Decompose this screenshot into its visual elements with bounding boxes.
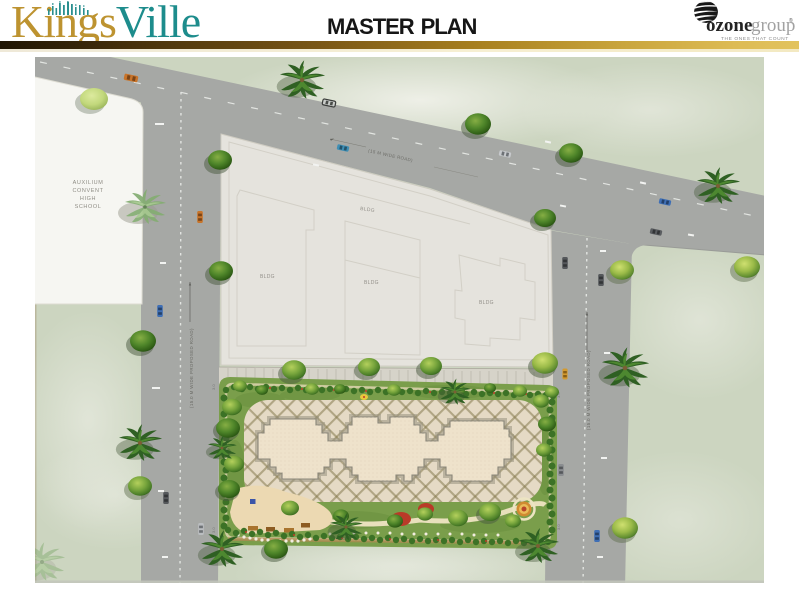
svg-text:BLDG: BLDG <box>364 280 379 286</box>
svg-text:3.0: 3.0 <box>556 524 561 530</box>
svg-text:3.0: 3.0 <box>211 384 216 390</box>
svg-text:ozone: ozone <box>706 15 752 36</box>
svg-text:®: ® <box>789 17 793 24</box>
svg-text:HIGH: HIGH <box>80 196 96 202</box>
svg-text:3.0: 3.0 <box>211 527 216 533</box>
svg-text:SCHOOL: SCHOOL <box>75 204 102 210</box>
svg-text:BLDG: BLDG <box>260 274 275 280</box>
svg-text:(15.0 M WIDE PROPOSED ROAD): (15.0 M WIDE PROPOSED ROAD) <box>189 328 194 408</box>
svg-text:(15.0 M WIDE PROPOSED ROAD): (15.0 M WIDE PROPOSED ROAD) <box>586 350 591 430</box>
svg-text:THE ONES THAT COUNT: THE ONES THAT COUNT <box>721 36 789 42</box>
svg-text:AUXILIUM: AUXILIUM <box>73 180 104 186</box>
svg-text:BLDG: BLDG <box>479 300 494 306</box>
svg-text:CONVENT: CONVENT <box>72 188 103 194</box>
